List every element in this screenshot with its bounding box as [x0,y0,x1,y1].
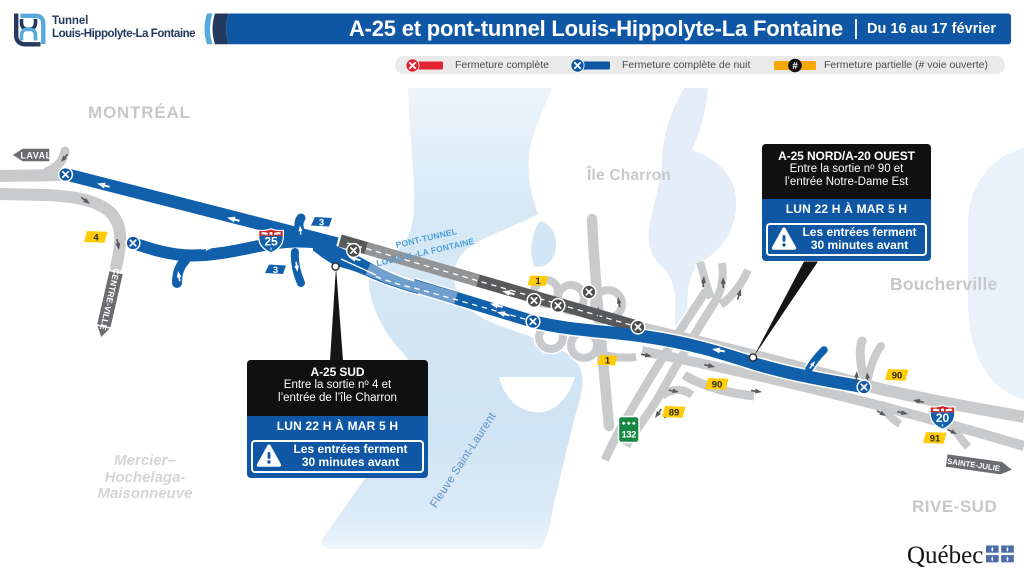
svg-text:90: 90 [712,379,723,390]
svg-text:132: 132 [622,430,637,441]
svg-text:LAVAL: LAVAL [20,151,51,161]
svg-text:1: 1 [535,276,541,287]
svg-text:25: 25 [264,235,278,249]
svg-text:3: 3 [273,265,278,276]
svg-text:91: 91 [930,433,941,444]
svg-text:89: 89 [669,407,680,418]
svg-text:#: # [792,61,798,72]
svg-text:4: 4 [93,232,99,243]
svg-text:1: 1 [605,356,611,367]
svg-text:20: 20 [936,411,950,425]
svg-text:3: 3 [319,217,324,228]
svg-text:90: 90 [892,370,903,381]
